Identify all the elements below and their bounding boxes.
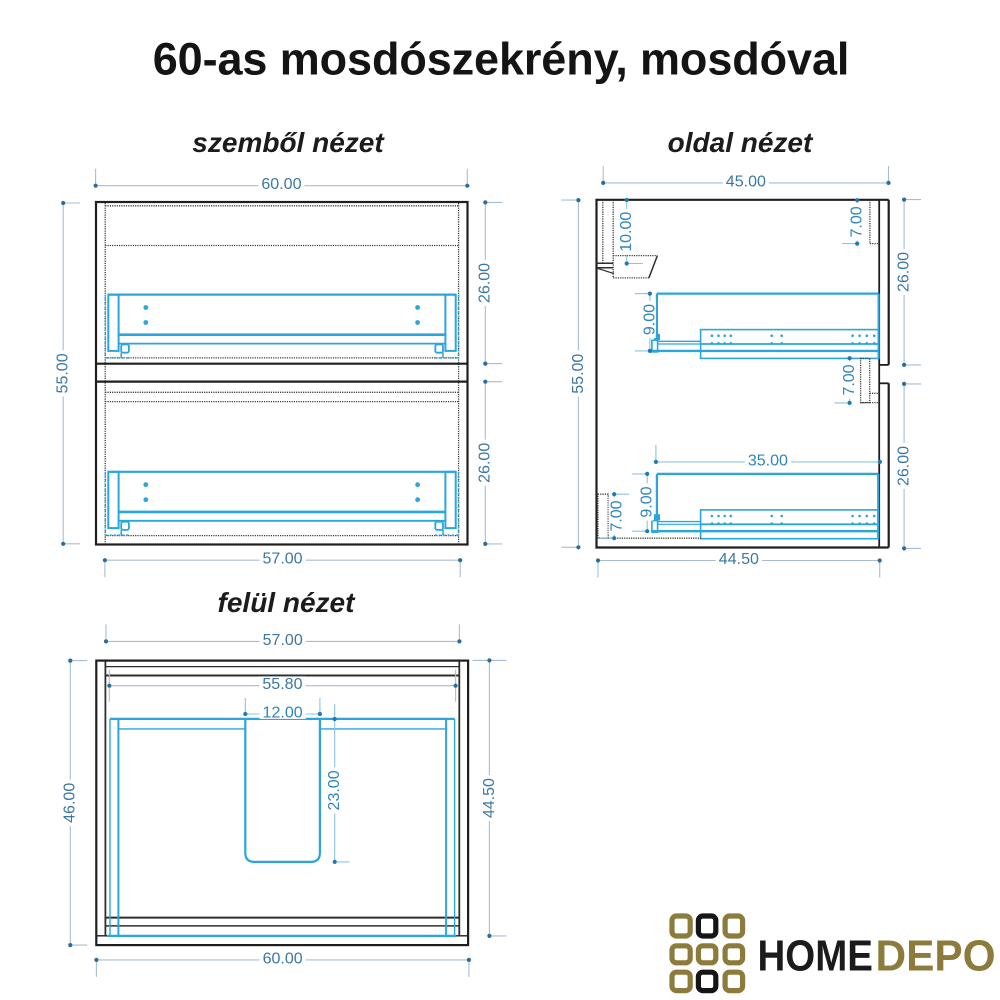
svg-text:44.50: 44.50	[481, 778, 498, 818]
svg-text:26.00: 26.00	[896, 446, 913, 486]
svg-text:46.00: 46.00	[62, 782, 79, 822]
svg-text:60-as mosdószekrény, mosdóval: 60-as mosdószekrény, mosdóval	[153, 34, 850, 85]
svg-text:35.00: 35.00	[748, 452, 788, 469]
svg-text:9.00: 9.00	[639, 486, 656, 518]
svg-text:60.00: 60.00	[263, 950, 303, 967]
svg-text:HOME: HOME	[758, 931, 873, 980]
svg-text:oldal nézet: oldal nézet	[668, 127, 814, 158]
svg-text:57.00: 57.00	[263, 632, 303, 649]
svg-text:7.00: 7.00	[841, 364, 858, 396]
svg-text:45.00: 45.00	[726, 173, 766, 190]
svg-text:60.00: 60.00	[261, 176, 301, 193]
svg-text:felül nézet: felül nézet	[218, 587, 357, 618]
svg-text:7.00: 7.00	[849, 206, 866, 238]
svg-text:26.00: 26.00	[896, 252, 913, 292]
svg-text:26.00: 26.00	[477, 442, 494, 482]
svg-text:57.00: 57.00	[263, 551, 303, 568]
svg-text:23.00: 23.00	[326, 770, 343, 810]
svg-text:szemből nézet: szemből nézet	[192, 127, 385, 158]
svg-text:12.00: 12.00	[263, 704, 303, 721]
svg-text:7.00: 7.00	[608, 500, 625, 532]
svg-text:55.00: 55.00	[570, 353, 587, 393]
svg-text:44.50: 44.50	[719, 551, 759, 568]
svg-text:55.80: 55.80	[262, 676, 302, 693]
svg-text:55.00: 55.00	[55, 353, 72, 393]
svg-text:9.00: 9.00	[641, 304, 658, 336]
svg-text:10.00: 10.00	[618, 211, 635, 251]
svg-text:26.00: 26.00	[477, 263, 494, 303]
svg-text:DEPO: DEPO	[876, 932, 996, 981]
